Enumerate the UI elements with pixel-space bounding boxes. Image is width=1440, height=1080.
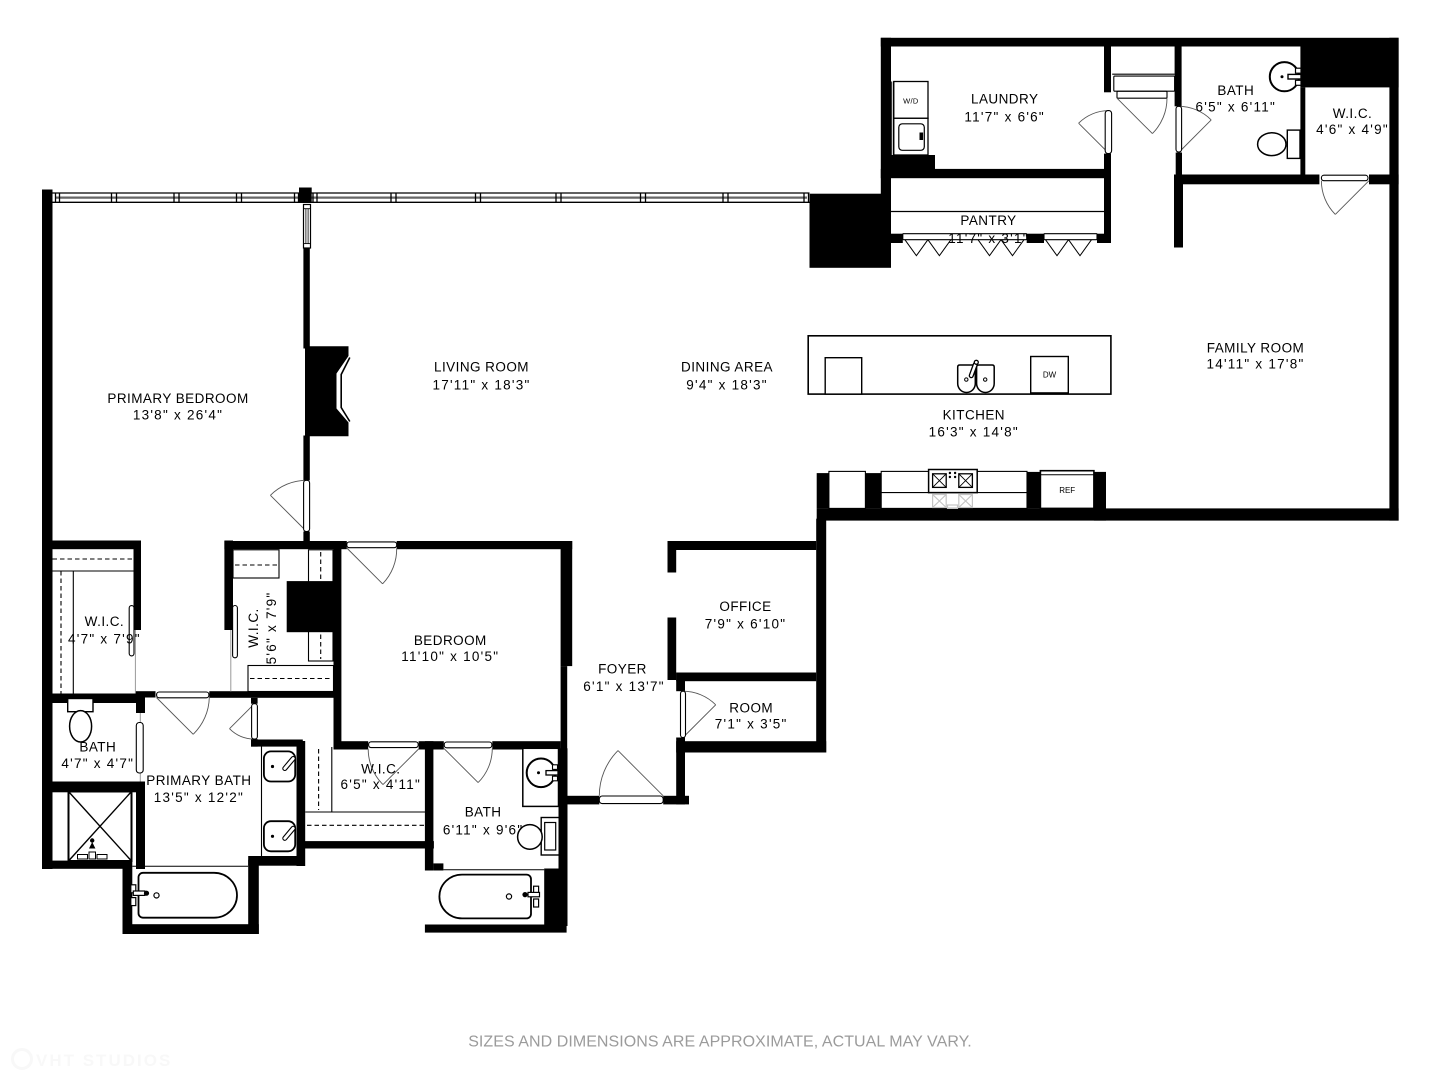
svg-text:PRIMARY BATH: PRIMARY BATH: [146, 773, 251, 788]
svg-text:W.I.C.: W.I.C.: [85, 614, 124, 629]
svg-text:6'11" x 9'6": 6'11" x 9'6": [443, 823, 524, 838]
svg-text:DW: DW: [1043, 371, 1057, 380]
svg-text:REF: REF: [1059, 486, 1075, 495]
svg-text:4'7" x 7'9": 4'7" x 7'9": [68, 632, 141, 647]
svg-text:LAUNDRY: LAUNDRY: [971, 92, 1038, 107]
svg-text:W.I.C.: W.I.C.: [246, 608, 261, 647]
svg-text:W.I.C.: W.I.C.: [361, 762, 400, 777]
svg-text:PRIMARY BEDROOM: PRIMARY BEDROOM: [107, 391, 248, 406]
svg-text:W.I.C.: W.I.C.: [1333, 106, 1372, 121]
svg-text:6'1" x 13'7": 6'1" x 13'7": [583, 679, 665, 694]
svg-text:BATH: BATH: [465, 804, 502, 819]
svg-text:4'7" x 4'7": 4'7" x 4'7": [61, 756, 134, 771]
svg-text:ROOM: ROOM: [729, 700, 773, 715]
svg-text:9'4" x 18'3": 9'4" x 18'3": [686, 378, 768, 393]
svg-text:DINING AREA: DINING AREA: [681, 360, 773, 375]
svg-text:W/D: W/D: [903, 97, 919, 106]
svg-text:14'11" x 17'8": 14'11" x 17'8": [1206, 357, 1304, 372]
svg-text:7'1" x 3'5": 7'1" x 3'5": [715, 717, 788, 732]
svg-text:4'6" x 4'9": 4'6" x 4'9": [1316, 122, 1389, 137]
svg-text:BEDROOM: BEDROOM: [414, 633, 487, 648]
svg-text:11'7" x 6'6": 11'7" x 6'6": [964, 110, 1045, 125]
svg-text:6'5" x 4'11": 6'5" x 4'11": [341, 777, 422, 792]
svg-text:17'11" x 18'3": 17'11" x 18'3": [432, 378, 530, 393]
svg-text:OFFICE: OFFICE: [719, 599, 771, 614]
svg-text:11'7" x 3'1": 11'7" x 3'1": [948, 231, 1029, 246]
svg-text:7'9" x 6'10": 7'9" x 6'10": [705, 617, 787, 632]
svg-text:VHT STUDIOS: VHT STUDIOS: [36, 1051, 172, 1070]
svg-text:13'8" x 26'4": 13'8" x 26'4": [133, 408, 223, 423]
svg-text:KITCHEN: KITCHEN: [943, 408, 1005, 423]
svg-text:5'6" x 7'9": 5'6" x 7'9": [264, 592, 279, 665]
svg-text:16'3" x 14'8": 16'3" x 14'8": [929, 425, 1019, 440]
svg-text:PANTRY: PANTRY: [960, 213, 1016, 228]
svg-text:SIZES AND DIMENSIONS ARE APPRO: SIZES AND DIMENSIONS ARE APPROXIMATE, AC…: [468, 1034, 972, 1051]
svg-text:6'5" x 6'11": 6'5" x 6'11": [1196, 100, 1277, 115]
svg-text:BATH: BATH: [1217, 83, 1254, 98]
svg-text:13'5" x 12'2": 13'5" x 12'2": [154, 790, 244, 805]
svg-text:FOYER: FOYER: [598, 662, 647, 677]
svg-text:FAMILY ROOM: FAMILY ROOM: [1207, 341, 1304, 356]
svg-text:11'10" x 10'5": 11'10" x 10'5": [401, 649, 499, 664]
svg-text:BATH: BATH: [79, 739, 116, 754]
svg-text:LIVING ROOM: LIVING ROOM: [434, 360, 529, 375]
